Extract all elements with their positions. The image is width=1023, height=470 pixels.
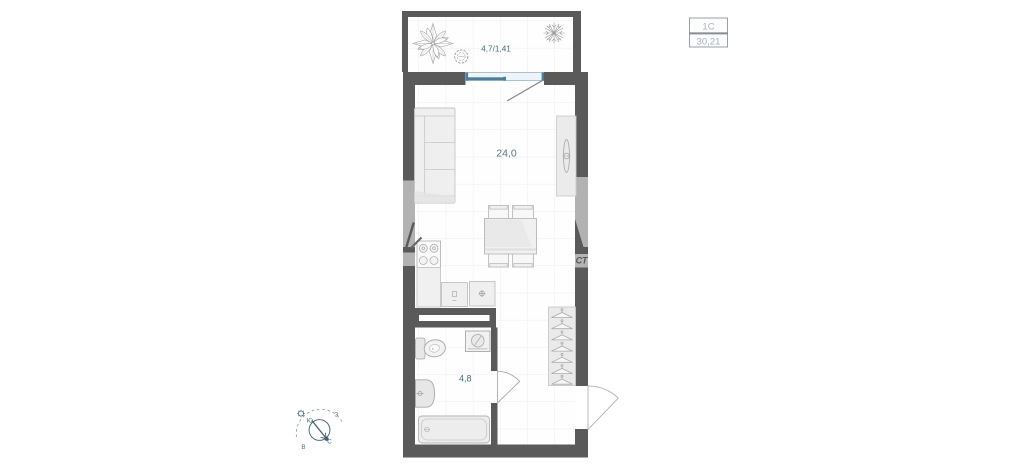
svg-text:24,0: 24,0 [496, 148, 517, 160]
svg-text:1С: 1С [702, 22, 714, 33]
svg-text:4,7/1,41: 4,7/1,41 [481, 45, 511, 54]
svg-text:30,21: 30,21 [697, 37, 721, 48]
svg-text:С: С [327, 439, 332, 446]
svg-text:4,8: 4,8 [459, 374, 472, 384]
svg-text:В: В [301, 444, 305, 451]
svg-text:СТ: СТ [576, 256, 589, 266]
svg-text:Ю: Ю [307, 417, 313, 424]
svg-text:З: З [334, 412, 338, 419]
